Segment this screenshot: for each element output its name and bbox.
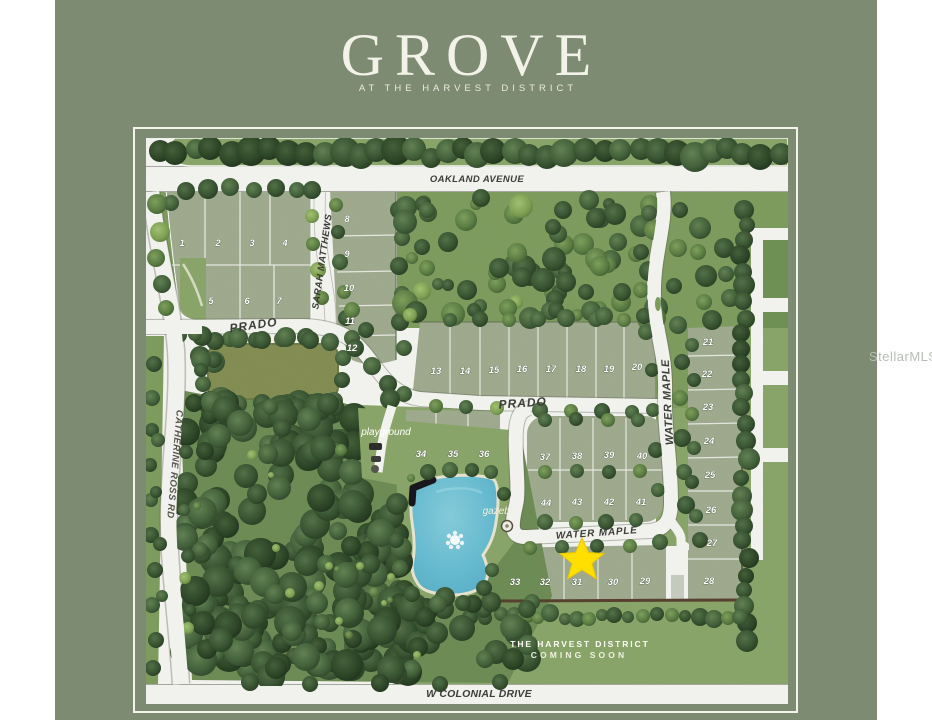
svg-text:31: 31 bbox=[572, 577, 583, 588]
svg-text:22: 22 bbox=[701, 369, 713, 380]
svg-text:34: 34 bbox=[416, 449, 427, 460]
svg-text:7: 7 bbox=[276, 296, 282, 307]
svg-text:playground: playground bbox=[360, 427, 411, 438]
svg-text:COMING SOON: COMING SOON bbox=[531, 650, 627, 660]
svg-text:11: 11 bbox=[345, 316, 355, 327]
svg-text:1: 1 bbox=[179, 238, 184, 249]
svg-text:30: 30 bbox=[608, 577, 619, 588]
svg-text:15: 15 bbox=[489, 365, 500, 376]
svg-text:4: 4 bbox=[281, 238, 288, 249]
svg-text:41: 41 bbox=[635, 497, 647, 508]
svg-text:40: 40 bbox=[636, 451, 648, 462]
svg-text:26: 26 bbox=[705, 505, 717, 516]
svg-text:8: 8 bbox=[344, 214, 350, 225]
svg-text:2: 2 bbox=[214, 238, 221, 249]
svg-text:28: 28 bbox=[703, 576, 715, 587]
svg-text:14: 14 bbox=[460, 366, 471, 377]
svg-text:20: 20 bbox=[631, 362, 643, 373]
svg-text:13: 13 bbox=[431, 366, 442, 377]
svg-text:17: 17 bbox=[546, 364, 557, 375]
svg-text:42: 42 bbox=[603, 497, 615, 508]
svg-text:9: 9 bbox=[344, 249, 350, 260]
svg-text:5: 5 bbox=[208, 296, 214, 307]
svg-text:43: 43 bbox=[571, 497, 583, 508]
svg-text:THE HARVEST DISTRICT: THE HARVEST DISTRICT bbox=[510, 639, 649, 649]
svg-text:OAKLAND AVENUE: OAKLAND AVENUE bbox=[430, 174, 525, 185]
svg-text:33: 33 bbox=[510, 577, 521, 588]
svg-text:W COLONIAL DRIVE: W COLONIAL DRIVE bbox=[426, 688, 532, 700]
svg-text:10: 10 bbox=[344, 283, 355, 294]
svg-text:37: 37 bbox=[540, 452, 551, 463]
svg-text:35: 35 bbox=[448, 449, 459, 460]
svg-text:16: 16 bbox=[517, 364, 528, 375]
svg-text:19: 19 bbox=[604, 364, 615, 375]
svg-text:44: 44 bbox=[540, 498, 552, 509]
svg-text:12: 12 bbox=[347, 343, 358, 354]
svg-text:25: 25 bbox=[704, 470, 716, 481]
svg-text:gazebo: gazebo bbox=[483, 506, 516, 517]
svg-text:27: 27 bbox=[706, 538, 718, 549]
svg-text:3: 3 bbox=[249, 238, 255, 249]
svg-text:39: 39 bbox=[604, 450, 615, 461]
svg-text:36: 36 bbox=[479, 449, 490, 460]
svg-text:6: 6 bbox=[244, 296, 250, 307]
svg-text:29: 29 bbox=[639, 576, 651, 587]
svg-text:18: 18 bbox=[576, 364, 587, 375]
svg-text:32: 32 bbox=[540, 577, 551, 588]
svg-text:23: 23 bbox=[702, 402, 714, 413]
svg-text:38: 38 bbox=[572, 451, 583, 462]
svg-text:21: 21 bbox=[702, 337, 714, 348]
svg-text:24: 24 bbox=[703, 436, 715, 447]
